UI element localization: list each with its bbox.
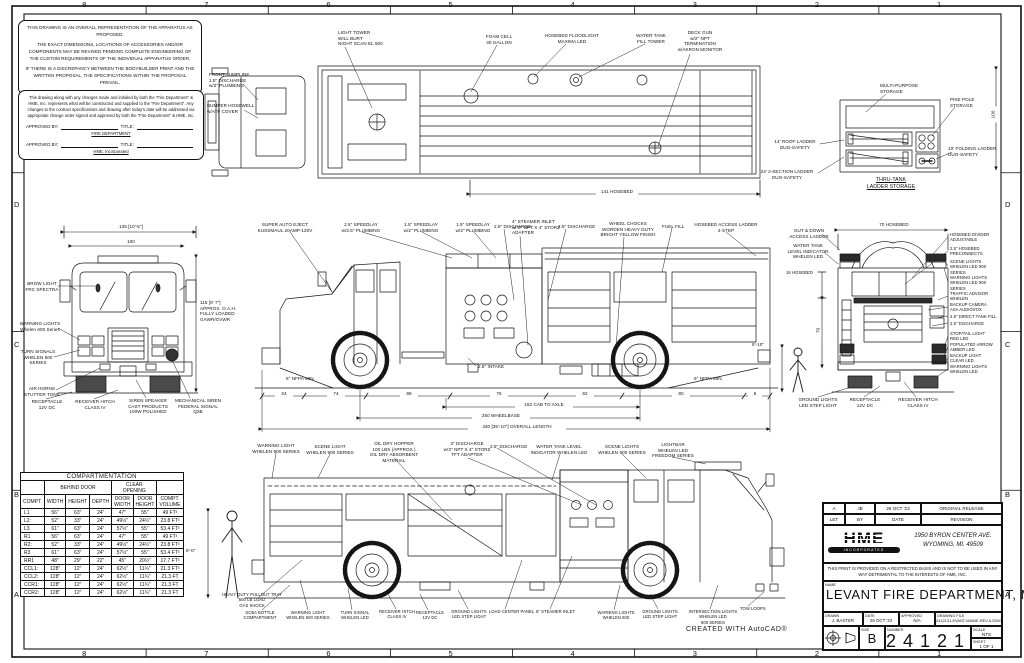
compartment-value: 62½" bbox=[112, 573, 133, 581]
callout-label: BROW LIGHT FRC SPECTRA bbox=[24, 281, 60, 292]
person-figure-rear bbox=[790, 348, 806, 392]
callout-label: HOSEBED ACCESS LADDER 4-STEP bbox=[692, 222, 760, 233]
compartment-value: 63" bbox=[66, 525, 90, 533]
leader-line bbox=[622, 454, 646, 478]
number-cell: NUMBER 24121 bbox=[885, 626, 971, 650]
rev-description-value: ORIGINAL RELEASE bbox=[921, 503, 1002, 514]
rev-description-label: REVISION bbox=[921, 514, 1002, 525]
col-header: HEIGHT bbox=[66, 495, 90, 509]
callout-label: WARNING LIGHT WHELEN 600 SERIES bbox=[283, 610, 333, 621]
compartment-value: 53.4 FT³ bbox=[157, 549, 183, 557]
compartment-value: 24" bbox=[90, 509, 112, 517]
leader-line bbox=[748, 592, 764, 606]
agreement-text: This drawing along with any changes made… bbox=[26, 95, 196, 119]
zone-label: 2 bbox=[815, 649, 819, 658]
clear-opening-group: CLEAR OPENING bbox=[112, 481, 157, 495]
compartment-value: 62½" bbox=[112, 565, 133, 573]
callout-label: 125 [10'-5"] bbox=[108, 225, 154, 230]
compartment-value: 29" bbox=[66, 557, 90, 565]
table-row: CCL1:128"12"24"62½"11¼"21.3 FT³ bbox=[21, 565, 184, 573]
zone-label: 6 bbox=[326, 0, 330, 9]
leader-line bbox=[710, 585, 718, 609]
leader-line bbox=[579, 44, 645, 77]
rev-by-value: JB bbox=[845, 503, 875, 514]
callout-label: RECEPTACLE 12V DC bbox=[413, 610, 447, 621]
compartment-value: 22" bbox=[90, 557, 112, 565]
callout-label: SCENE LIGHTS WHELEN 900 SERIES bbox=[596, 444, 648, 455]
leader-line bbox=[468, 458, 582, 505]
drawing-file-value: 241213-LEVANT-MAINE-REV A.DWG bbox=[936, 618, 1001, 623]
callout-label: LIGHTBAR WHELEN LED FREEDOM SERIES bbox=[650, 442, 696, 459]
approved-value: N/A bbox=[900, 618, 934, 623]
hme-sub: HME, Incorporated bbox=[26, 149, 196, 155]
compartment-value: 49 FT³ bbox=[157, 533, 183, 541]
size-value: B bbox=[860, 632, 884, 645]
table-row: R156"63"24"47"55"49 FT³ bbox=[21, 533, 184, 541]
col-header: COMPT. bbox=[21, 495, 45, 509]
callout-label: BUMPER HOSEWELL w/ATF COVER bbox=[207, 103, 254, 114]
compartment-value: 47" bbox=[112, 533, 133, 541]
zone-label: A bbox=[14, 590, 19, 599]
zone-label: 3 bbox=[693, 649, 697, 658]
callout-label: FRONT JUMPLINE 1.5" DISCHARGE w/2" PLUMB… bbox=[209, 72, 249, 89]
rev-let-value: A bbox=[823, 503, 845, 514]
compartment-id: R2: bbox=[21, 541, 45, 549]
callout-label: 82 bbox=[576, 392, 594, 397]
restriction-band: THIS PRINT IS PROVIDED ON A RESTRICTED B… bbox=[823, 563, 1002, 581]
compartment-value: 21.3 FT bbox=[157, 589, 183, 597]
note-paragraph: THIS DRAWING IS AN OVERALL REPRESENTATIO… bbox=[25, 25, 195, 38]
callout-label: 24' 2-SECTION LADDER DUO-SAFETY bbox=[756, 169, 818, 180]
callout-label: GROUND LIGHTS LED STEP LIGHT bbox=[447, 609, 491, 620]
compartmentation-table: COMPARTMENTATION BEHIND DOOR CLEAR OPENI… bbox=[20, 472, 184, 597]
table-row: CCL2:128"12"24"62½"11¼"21.3 FT bbox=[21, 573, 184, 581]
compartment-value: 17.7 FT³ bbox=[157, 557, 183, 565]
compartment-value: 55" bbox=[133, 533, 157, 541]
approved-cell: APPROVED N/A bbox=[899, 612, 935, 626]
leader-line bbox=[362, 232, 452, 258]
callout-label: HEAVY DUTY PULLOUT TRAY 500 LB LOAD GAS … bbox=[220, 592, 284, 608]
compartment-value: 24" bbox=[90, 549, 112, 557]
zone-label: 6 bbox=[326, 649, 330, 658]
callout-label: SIREN SPEAKER CAST PRODUCTS 100W POLISHE… bbox=[126, 398, 170, 415]
compartment-value: 33" bbox=[66, 517, 90, 525]
callout-label: WARNING LIGHT WHELEN 900 SERIES bbox=[252, 443, 300, 454]
callout-label: WARNING LIGHTS Whelen 600 Series bbox=[18, 321, 62, 332]
callout-label: WHEEL CHOCKS WORDEN HEAVY DUTY BRIGHT YE… bbox=[598, 221, 658, 238]
callout-label: 2.5" DIRECT TANK FILL bbox=[950, 314, 997, 319]
leader-line bbox=[932, 323, 948, 326]
callout-label: 14' ROOF LADDER DUO-SAFETY bbox=[770, 139, 820, 150]
compartment-value: 63" bbox=[66, 509, 90, 517]
leader-line bbox=[272, 453, 276, 478]
note-paragraph: THE EXACT DIMENSIONS, LOCATIONS OF ACCES… bbox=[25, 42, 195, 62]
front-wheel bbox=[333, 333, 387, 387]
callout-label: OIL DRY HOPPER 100 LBS (APPROX.) OIL DRY… bbox=[360, 441, 428, 464]
callout-label: 24 bbox=[275, 392, 293, 397]
compartment-value: 11¼" bbox=[133, 565, 157, 573]
compartment-value: 53.4 FT³ bbox=[157, 525, 183, 533]
callout-label: MECHANICAL SIREN FEDERAL SIGNAL Q2B bbox=[174, 398, 222, 415]
callout-label: 75 bbox=[490, 392, 508, 397]
callout-label: WARNING LIGHTS WHELEN LED bbox=[950, 364, 987, 375]
zone-label: 7 bbox=[204, 649, 208, 658]
leader-line bbox=[388, 594, 396, 609]
compartment-id: CCR1: bbox=[21, 581, 45, 589]
compartment-value: 62½" bbox=[112, 581, 133, 589]
compartment-value: 48" bbox=[44, 557, 65, 565]
callout-label: 100 bbox=[120, 240, 142, 245]
rev-date-value: 26 OCT '23 bbox=[875, 503, 921, 514]
callout-label: 2.5" DISCHARGE bbox=[490, 444, 527, 450]
compartment-value: 12" bbox=[66, 581, 90, 589]
callout-label: GROUND LIGHTS LED STEP LIGHT bbox=[796, 397, 840, 408]
callout-label: SCENE LIGHTS WHELEN LED 900 SERIES bbox=[950, 259, 986, 275]
callout-label: 430 [35'-10"] OVERALL LENGTH bbox=[468, 425, 566, 430]
disclaimer-notes: THIS DRAWING IS AN OVERALL REPRESENTATIO… bbox=[18, 20, 202, 95]
callout-label: 8'-0" bbox=[186, 548, 195, 554]
compartment-value: 49 FT³ bbox=[157, 509, 183, 517]
compartment-id: L2: bbox=[21, 517, 45, 525]
callout-label: LOAD CENTER PANEL bbox=[489, 609, 534, 614]
sheet-value: 1 OF 1 bbox=[972, 644, 1001, 649]
zone-label: 5 bbox=[448, 649, 452, 658]
callout-label: SCBA BOTTLE COMPARTMENT bbox=[240, 610, 280, 621]
table-title: COMPARTMENTATION bbox=[21, 473, 184, 481]
leader-line bbox=[345, 47, 372, 108]
leader-line bbox=[616, 237, 624, 348]
callout-label: BACKUP CAMERA ASA AUDIOVOX bbox=[950, 302, 987, 313]
callout-label: 2.5" DISCHARGE bbox=[950, 321, 984, 326]
leader-line bbox=[348, 588, 352, 610]
title-label: TITLE: bbox=[121, 142, 134, 148]
callout-label: 3" DISCHARGE w/3" NPT X 4" STORZ TFT ADA… bbox=[438, 441, 496, 458]
callout-label: TRAFFIC ADVISOR WHELEN bbox=[950, 291, 988, 302]
callout-label: 250 WHEELBASE bbox=[472, 414, 530, 419]
compartment-value: 21.3 FT bbox=[157, 573, 183, 581]
zone-label: 4 bbox=[571, 0, 575, 9]
compartment-value: 57½" bbox=[112, 549, 133, 557]
callout-label: POPULATED ARROW AMBER LED bbox=[950, 342, 993, 353]
drawing-sheet: LIGHT TOWER WILL BURT NIGHT SCAN EL 800D… bbox=[0, 0, 1024, 663]
compartment-value: 11¼" bbox=[133, 581, 157, 589]
compartment-value: 24" bbox=[90, 517, 112, 525]
rev-by-label: BY bbox=[845, 514, 875, 525]
callout-label: RECEIVER HITCH CLASS IV bbox=[896, 397, 940, 408]
leader-line bbox=[552, 454, 560, 480]
signature-line bbox=[137, 124, 193, 130]
logo-stripe bbox=[832, 539, 896, 540]
fire-department-sub: FIRE DEPARTMENT bbox=[26, 131, 196, 137]
leader-line bbox=[458, 590, 468, 609]
callout-label: 8 bbox=[748, 392, 762, 397]
rear-wheel-officer bbox=[345, 543, 399, 597]
logo-band: HME INCORPORATED 1950 BYRON CENTER AVE. … bbox=[823, 525, 1002, 563]
title-label: TITLE: bbox=[121, 124, 134, 130]
compartment-value: 61" bbox=[44, 549, 65, 557]
leader-line bbox=[300, 580, 308, 610]
callout-label: RECEPTACLE 12V DC bbox=[848, 397, 882, 408]
compartment-value: 62½" bbox=[112, 589, 133, 597]
signature-line bbox=[61, 124, 117, 130]
callout-label: STOP/TAIL LIGHT RED LED bbox=[950, 331, 985, 342]
compartment-value: 24½" bbox=[133, 517, 157, 525]
spacer-cell bbox=[157, 481, 183, 495]
third-angle-projection-icon bbox=[824, 627, 858, 649]
callout-label: FUEL FILL bbox=[662, 224, 685, 230]
table-row: R2:52"33"24"49½"24½"23.8 FT³ bbox=[21, 541, 184, 549]
compartment-value: 128" bbox=[44, 573, 65, 581]
compartment-id: RR1 bbox=[21, 557, 45, 565]
date-cell: DATE 26 OCT '23 bbox=[863, 612, 899, 626]
callout-label: PIKE POLE STORAGE bbox=[950, 97, 974, 108]
title-block: A JB 26 OCT '23 ORIGINAL RELEASE LET BY … bbox=[822, 502, 1003, 651]
callout-label: 9° NFPA MIN. bbox=[694, 376, 723, 382]
compartment-id: CCR2: bbox=[21, 589, 45, 597]
drawn-cell: DRAWN J. BAXTER bbox=[823, 612, 863, 626]
compartment-value: 49½" bbox=[112, 517, 133, 525]
callout-label: 4" STEAMER INLET w/ 6" NPT X 4" STORZ AD… bbox=[512, 219, 560, 236]
zone-label: C bbox=[14, 340, 19, 349]
compartment-value: 24" bbox=[90, 573, 112, 581]
table-row: L361"63"24"57½"55"53.4 FT³ bbox=[21, 525, 184, 533]
scale-value: NTS bbox=[972, 632, 1001, 637]
callout-label: 2.5" HOSEBED PRECONNECTS bbox=[950, 246, 983, 257]
leader-line bbox=[818, 388, 848, 397]
spacer-cell bbox=[21, 481, 45, 495]
callout-label: OUT & DOWN ACCESS LADDER bbox=[788, 228, 830, 239]
leader-line bbox=[497, 448, 596, 505]
compartment-value: 21.3 FT³ bbox=[157, 565, 183, 573]
zone-label: 2 bbox=[815, 0, 819, 9]
callout-label: GROUND LIGHTS LED STEP LIGHT bbox=[638, 609, 682, 620]
col-header: DOOR WIDTH bbox=[112, 495, 133, 509]
zone-label: D bbox=[14, 200, 19, 209]
compartment-value: 12" bbox=[66, 589, 90, 597]
compartment-value: 55" bbox=[133, 509, 157, 517]
scale-cell: SCALE NTS bbox=[971, 626, 1002, 638]
compartment-value: 128" bbox=[44, 581, 65, 589]
compartment-value: 56" bbox=[44, 533, 65, 541]
ladder-storage-detail bbox=[840, 100, 940, 172]
callout-label: INTERSECTION LIGHTS WHELEN LED 600 SERIE… bbox=[685, 609, 741, 625]
compartment-value: 52" bbox=[44, 541, 65, 549]
compartment-value: 47" bbox=[112, 509, 133, 517]
compartment-value: 128" bbox=[44, 565, 65, 573]
signature-line bbox=[137, 142, 193, 148]
compartment-value: 63" bbox=[66, 549, 90, 557]
leader-line bbox=[658, 54, 690, 146]
callout-label: 9° NFPA MIN. bbox=[286, 376, 315, 382]
compartment-value: 24" bbox=[90, 541, 112, 549]
compartment-value: 63" bbox=[66, 533, 90, 541]
compartment-id: R1 bbox=[21, 533, 45, 541]
date-value: 26 OCT '23 bbox=[864, 618, 898, 623]
compartment-value: 11¼" bbox=[133, 589, 157, 597]
callout-label: 6'-10" bbox=[752, 342, 764, 348]
leader-line bbox=[394, 458, 452, 520]
callout-label: 74 bbox=[327, 392, 345, 397]
compartment-value: 55" bbox=[133, 549, 157, 557]
leader-line bbox=[928, 307, 948, 310]
leader-line bbox=[866, 94, 886, 112]
front-view-drawing bbox=[58, 226, 198, 393]
compartment-value: 61" bbox=[44, 525, 65, 533]
leader-line bbox=[520, 236, 528, 345]
callout-label: RECEPTACLE 12V DC bbox=[30, 399, 64, 410]
zone-label: D bbox=[1005, 200, 1010, 209]
compartment-value: 21.3 FT bbox=[157, 581, 183, 589]
callout-label: 2.5" SPEEDLAY w/2.5" PLUMBING bbox=[338, 222, 384, 233]
compartment-id: CCL1: bbox=[21, 565, 45, 573]
zone-label: 8 bbox=[82, 649, 86, 658]
zone-label: 4 bbox=[571, 649, 575, 658]
col-header: WIDTH bbox=[44, 495, 65, 509]
rev-let-label: LET bbox=[823, 514, 845, 525]
compartment-value: 24" bbox=[90, 589, 112, 597]
leader-line bbox=[662, 228, 672, 272]
compartment-value: 24" bbox=[90, 533, 112, 541]
rev-date-label: DATE bbox=[875, 514, 921, 525]
compartment-value: 55" bbox=[133, 525, 157, 533]
compartment-id: R3 bbox=[21, 549, 45, 557]
table-row: L156"63"24"47"55"49 FT³ bbox=[21, 509, 184, 517]
callout-label: 70 bbox=[817, 323, 822, 337]
callout-label: 141 HOSEBED bbox=[596, 190, 638, 195]
table-row: CCR1:128"12"24"62½"11¼"21.3 FT bbox=[21, 581, 184, 589]
leader-line bbox=[420, 594, 428, 610]
leader-line bbox=[505, 560, 522, 609]
leader-line bbox=[136, 380, 146, 398]
leader-line bbox=[550, 556, 572, 609]
compartment-value: 24½" bbox=[133, 541, 157, 549]
callout-label: DECK GUN w/2" NPT TERMINATION w/AKRON MO… bbox=[668, 30, 732, 53]
approved-by-label: APPROVED BY: bbox=[26, 142, 58, 148]
leader-line bbox=[938, 296, 948, 300]
zone-label: 1 bbox=[937, 0, 941, 9]
callout-label: 100 bbox=[992, 106, 997, 122]
zone-label: 5 bbox=[448, 0, 452, 9]
callout-label: 162 CAB TO AXLE bbox=[515, 403, 573, 408]
compartment-value: 11¼" bbox=[133, 573, 157, 581]
compartment-value: 23.8 FT³ bbox=[157, 517, 183, 525]
rear-wheel bbox=[613, 333, 667, 387]
callout-label: HOSEBED DIVIDER ADJUSTABLE bbox=[950, 232, 989, 243]
leader-line bbox=[290, 232, 332, 292]
sheet-cell: SHEET 1 OF 1 bbox=[971, 638, 1002, 650]
callout-label: 88 bbox=[400, 392, 418, 397]
callout-label: 70 HOSEBED bbox=[872, 223, 916, 228]
logo-stripe bbox=[832, 543, 896, 544]
callout-label: TOW LOOPS bbox=[740, 606, 766, 611]
leader-line bbox=[471, 45, 497, 92]
compartment-id: CCL2: bbox=[21, 573, 45, 581]
compartment-value: 52" bbox=[44, 517, 65, 525]
compartment-value: 56" bbox=[44, 509, 65, 517]
leader-line bbox=[318, 454, 330, 478]
zone-label: 3 bbox=[693, 0, 697, 9]
leader-line bbox=[504, 229, 514, 300]
leader-line bbox=[820, 140, 844, 144]
callout-label: WATER TANK LEVEL INDICATOR WHELEN LED bbox=[786, 243, 830, 260]
approval-notes: This drawing along with any changes made… bbox=[18, 90, 204, 160]
person-figure-officer bbox=[222, 511, 242, 598]
callout-label: 1.5" SPEEDLAY w/2" PLUMBING bbox=[452, 222, 494, 233]
zone-label: B bbox=[14, 490, 19, 499]
callout-label: BACKUP LIGHT CLEAR LED bbox=[950, 353, 981, 364]
created-with-text: CREATED WITH AutoCAD® bbox=[686, 626, 787, 633]
hme-logo: HME INCORPORATED bbox=[828, 530, 900, 560]
callout-label: WATER TANK LEVEL INDICATOR WHELEN LED bbox=[528, 444, 590, 455]
name-band: NAME LEVANT FIRE DEPARTMENT, ME bbox=[823, 581, 1002, 612]
callout-label: MULTI-PURPOSE STORAGE bbox=[880, 83, 918, 94]
behind-door-group: BEHIND DOOR bbox=[44, 481, 111, 495]
callout-label: 80 bbox=[672, 392, 690, 397]
signature-line bbox=[61, 142, 117, 148]
leader-line bbox=[534, 44, 566, 77]
leader-line bbox=[932, 107, 955, 136]
callout-label: 10' FOLDING LADDER DUO-SAFETY bbox=[948, 146, 997, 157]
compartment-value: 24" bbox=[90, 581, 112, 589]
table-row: R361"63"24"57½"55"53.4 FT³ bbox=[21, 549, 184, 557]
compartment-value: 20½" bbox=[133, 557, 157, 565]
zone-label: 8 bbox=[82, 0, 86, 9]
compartment-id: L3 bbox=[21, 525, 45, 533]
officer-side-view-drawing bbox=[208, 462, 785, 598]
callout-label: 115 [9' 7"] APPROX. O.A.H. FULLY LOADED … bbox=[200, 300, 236, 323]
callout-label: FOAM CELL 30 GALLON bbox=[478, 34, 520, 45]
callout-label: TURN SIGNAL WHELEN LED bbox=[336, 610, 374, 621]
col-header: DEPTH bbox=[90, 495, 112, 509]
callout-label: 18 HOSEBED bbox=[786, 270, 813, 275]
compartment-id: L1 bbox=[21, 509, 45, 517]
callout-label: AIR HORNS STUTTER TONE bbox=[22, 386, 62, 397]
zone-label: B bbox=[1005, 490, 1010, 499]
col-header: COMPT. VOLUME bbox=[157, 495, 183, 509]
callout-label: LIGHT TOWER WILL BURT NIGHT SCAN EL 800 bbox=[338, 30, 383, 47]
table-row: L2:52"33"24"49½"24½"23.8 FT³ bbox=[21, 517, 184, 525]
compartment-value: 128" bbox=[44, 589, 65, 597]
size-cell: SIZE B bbox=[859, 626, 885, 650]
leader-line bbox=[468, 358, 476, 366]
leader-line bbox=[548, 229, 566, 300]
callout-label: HOSEBED FLOODLIGHT MAXIMA LED bbox=[540, 33, 604, 44]
callout-label: WARNING LIGHTS WHELEN LED 900 SERIES bbox=[950, 275, 987, 291]
callout-label: 1.5" SPEEDLAY w/2" PLUMBING bbox=[400, 222, 442, 233]
leader-line bbox=[944, 268, 948, 282]
callout-label: WATER TANK FILL TOWER bbox=[628, 33, 674, 44]
hme-address: 1950 BYRON CENTER AVE. WYOMING, MI. 4950… bbox=[906, 532, 1000, 550]
callout-label: 6" STEAMER INLET bbox=[536, 609, 575, 614]
compartment-value: 23.8 FT³ bbox=[157, 541, 183, 549]
drawing-file-cell: DRAWING FILE 241213-LEVANT-MAINE-REV A.D… bbox=[935, 612, 1002, 626]
zone-label: 7 bbox=[204, 0, 208, 9]
compartment-value: 45" bbox=[112, 557, 133, 565]
leader-line bbox=[726, 232, 756, 256]
compartment-value: 24" bbox=[90, 565, 112, 573]
col-header: DOOR HEIGHT bbox=[133, 495, 157, 509]
compartment-value: 12" bbox=[66, 573, 90, 581]
restriction-text: THIS PRINT IS PROVIDED ON A RESTRICTED B… bbox=[825, 566, 1000, 577]
note-paragraph: IF THERE IS A DISCREPANCY BETWEEN THE BO… bbox=[25, 66, 195, 86]
compartment-value: 57½" bbox=[112, 525, 133, 533]
compartment-value: 24" bbox=[90, 525, 112, 533]
approved-by-label: APPROVED BY: bbox=[26, 124, 58, 130]
callout-label: SUPER AUTO EJECT KUSSMAUL 20AMP-120V bbox=[256, 222, 314, 233]
compartment-value: 33" bbox=[66, 541, 90, 549]
callout-label: WARNING LIGHTS WHELEN 600 bbox=[594, 610, 638, 621]
table-row: CCR2:128"12"24"62½"11¼"21.3 FT bbox=[21, 589, 184, 597]
